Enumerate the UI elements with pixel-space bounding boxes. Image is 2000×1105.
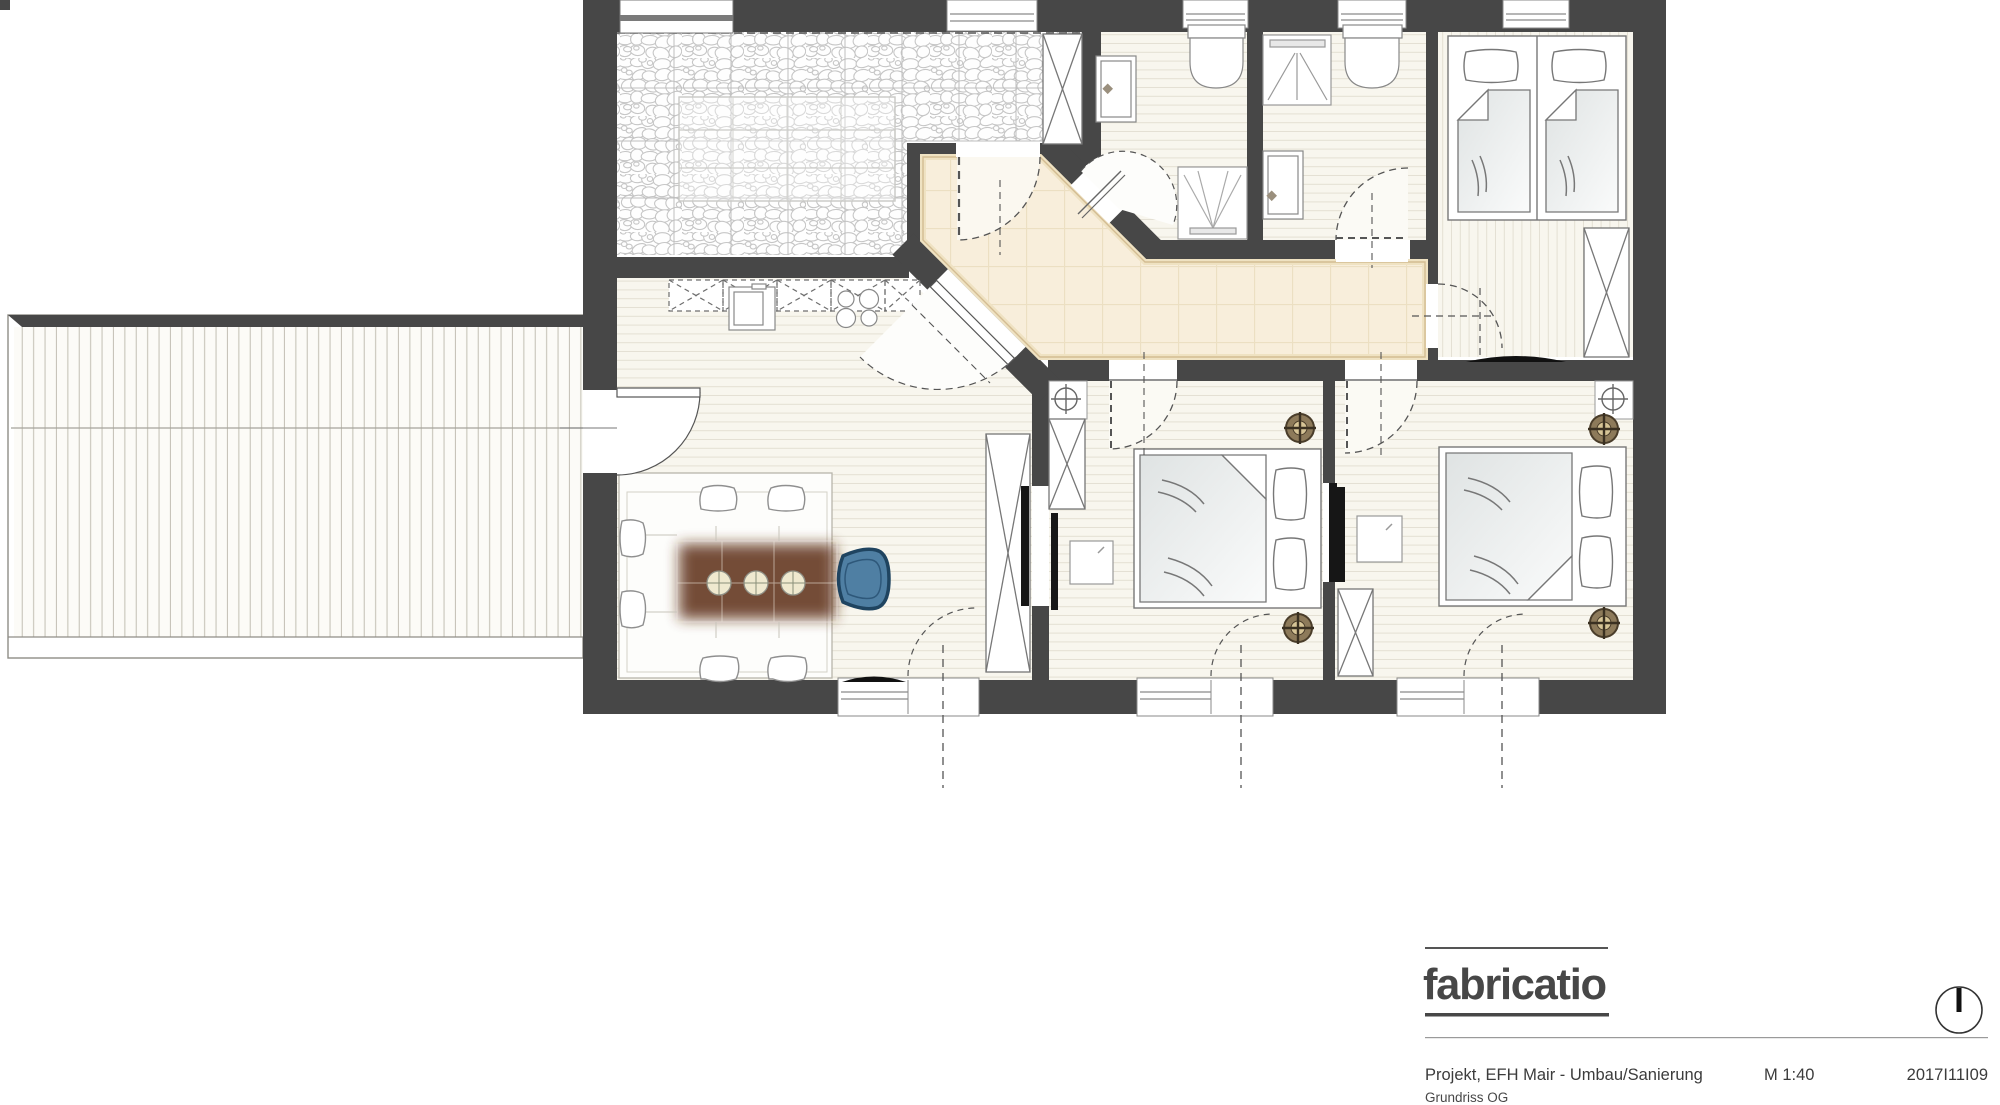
- svg-text:fabricatio: fabricatio: [1423, 961, 1606, 1009]
- svg-text:M 1:40: M 1:40: [1764, 1066, 1814, 1084]
- svg-text:2017I11I09: 2017I11I09: [1907, 1066, 1988, 1084]
- svg-text:Projekt, EFH Mair - Umbau/Sani: Projekt, EFH Mair - Umbau/Sanierung: [1425, 1066, 1703, 1084]
- svg-text:Grundriss OG: Grundriss OG: [1425, 1090, 1508, 1105]
